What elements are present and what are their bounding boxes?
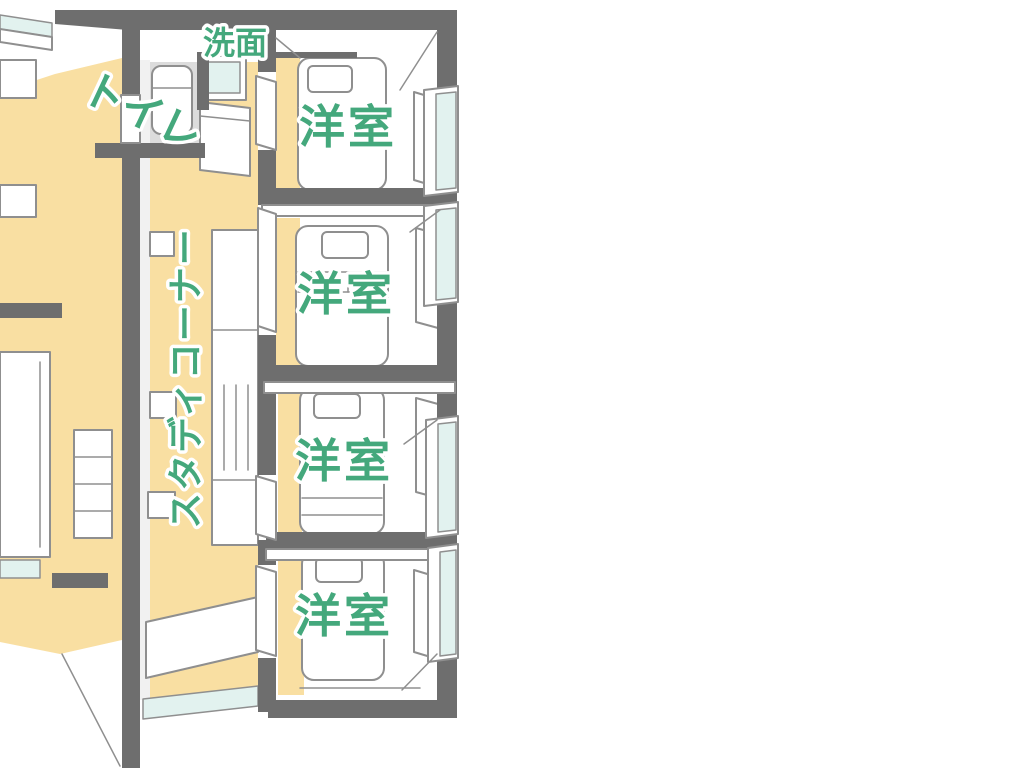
door-panel-room-2 [258,208,276,332]
label-study-corner: スタディコーナー [165,227,207,528]
wall-divider-2 [264,365,455,382]
door-panel-room-3 [256,476,276,540]
label-western-room-3: 洋室 [295,434,393,488]
window-glass-room-3 [438,422,456,532]
pillow-room-4 [316,558,362,582]
wall-left-vertical [122,143,140,768]
pillow-room-3 [314,394,360,418]
floor-strip-room-1 [276,58,300,188]
window-glass-room-1 [436,92,456,190]
label-western-room-2: 洋室 [297,267,395,321]
wall-face-divider-3 [266,549,455,560]
kitchen-unit [0,60,36,98]
pillow-room-1 [308,66,352,92]
wall-corridor-bedrooms [258,335,276,475]
washbasin-cabinet [200,102,250,176]
wall-stub-left-2 [52,573,108,588]
left-wall-window [0,560,40,578]
outer-wall-right [437,300,457,422]
wall-inner-rail [275,52,357,58]
floor-plan-illustration: 洗面 トイレ スタディコーナー 洋室 洋室 洋室 洋室 [0,0,1024,768]
door-panel-room-1 [256,76,276,150]
label-western-room-4: 洋室 [295,589,393,643]
window-glass-room-2 [436,208,456,300]
label-washbasin: 洗面 [203,24,267,62]
wall-stub-left-1 [0,303,62,318]
wall-face-divider-2 [264,382,455,393]
pillow-room-2 [322,232,368,258]
outer-wall-bottom [268,700,455,718]
outer-wall-right [437,656,457,718]
window-glass-room-4 [440,550,456,656]
mirror [206,62,240,93]
kitchen-unit-2 [0,185,36,217]
dining-table [0,352,50,557]
label-western-room-1: 洋室 [299,100,397,154]
study-desk [212,230,258,545]
floor-plan-canvas: 洗面 トイレ スタディコーナー 洋室 洋室 洋室 洋室 [0,0,1024,768]
door-panel-room-4 [256,566,276,656]
outer-wall-right [437,10,457,98]
